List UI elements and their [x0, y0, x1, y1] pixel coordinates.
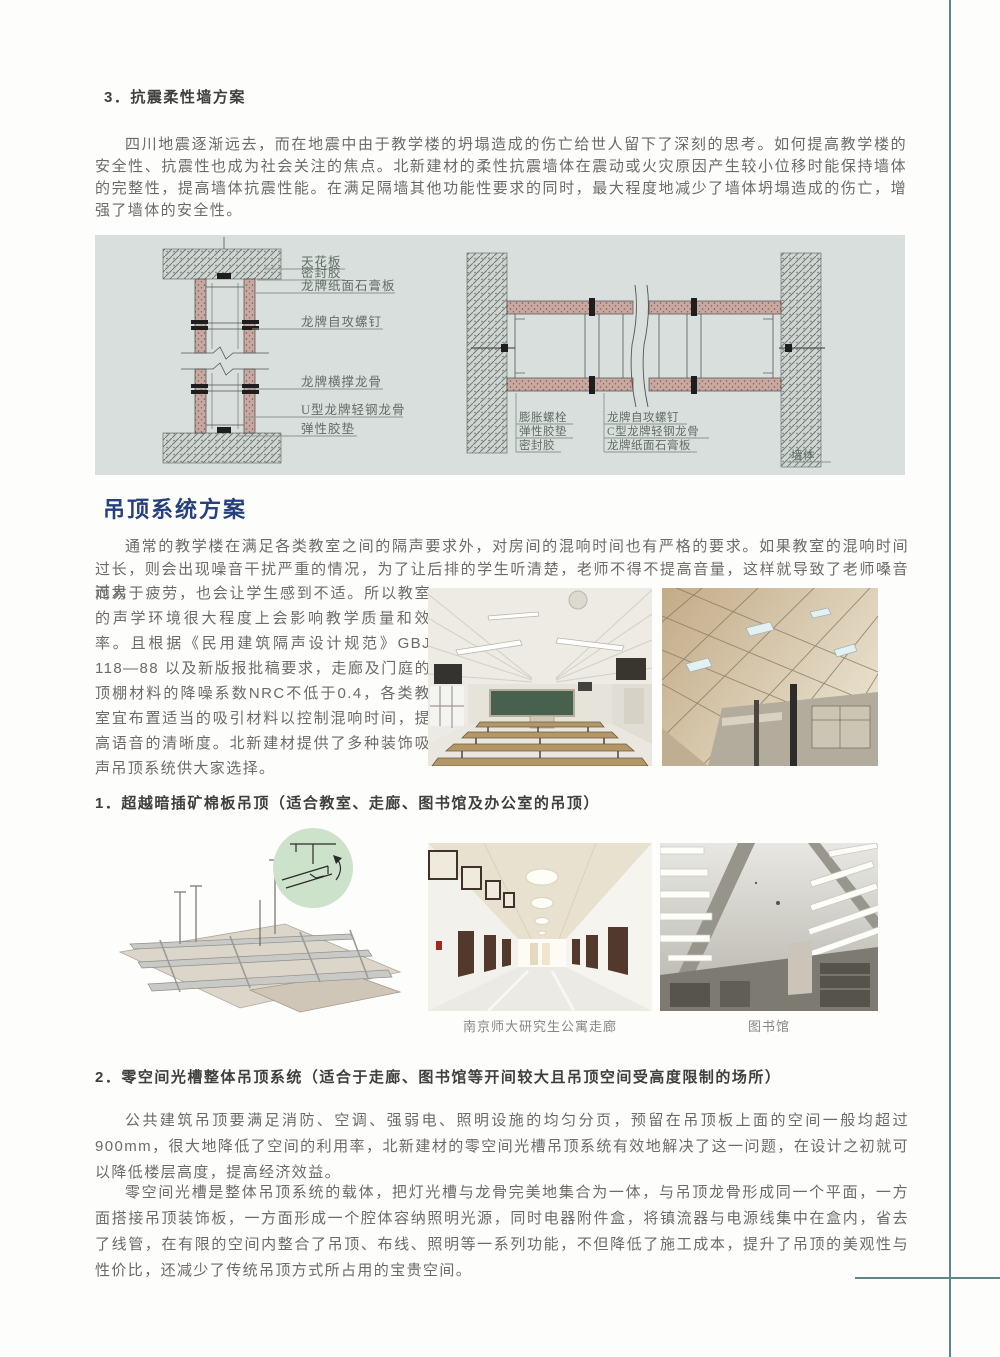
diagram-label: 龙牌纸面石膏板 — [301, 278, 396, 293]
corridor-photo-caption: 南京师大研究生公寓走廊 — [428, 1016, 652, 1035]
corridor-photo — [428, 843, 652, 1011]
ceiling-section-heading: 吊顶系统方案 — [103, 492, 247, 524]
mineral-wool-ceiling-heading: 1．超越暗插矿棉板吊顶（适合教室、走廊、图书馆及办公室的吊顶） — [95, 792, 600, 813]
diagram-label: 密封胶 — [301, 265, 342, 280]
diagram-label: 膨胀螺栓 — [519, 410, 567, 424]
diagram-label: 墙体 — [791, 448, 815, 462]
library-ceiling-photo — [660, 843, 878, 1011]
library-photo-caption: 图书馆 — [660, 1016, 878, 1035]
diagram-label: 弹性胶垫 — [301, 421, 355, 436]
suspended-ceiling-illustration — [100, 822, 420, 1018]
classroom-photo — [428, 588, 652, 766]
diagram-label: 龙牌自攻螺钉 — [607, 410, 679, 424]
wall-section-paragraph: 四川地震逐渐远去，而在地震中由于教学楼的坍塌造成的伤亡给世人留下了深刻的思考。如… — [95, 134, 907, 222]
document-page: 3．抗震柔性墙方案 四川地震逐渐远去，而在地震中由于教学楼的坍塌造成的伤亡给世人… — [0, 0, 1000, 1357]
wall-diagram-panel: 天花板 密封胶 龙牌纸面石膏板 龙牌自攻螺钉 龙牌横撑龙骨 U型龙牌轻钢龙骨 弹… — [95, 235, 905, 475]
ceiling-paragraph-part2: 而易于疲劳，也会让学生感到不适。所以教室的声学环境很大程度上会影响教学质量和效率… — [95, 581, 431, 781]
diagram-label: U型龙牌轻钢龙骨 — [301, 402, 406, 417]
page-rule-vertical — [949, 0, 951, 1357]
wall-section-heading: 3．抗震柔性墙方案 — [104, 86, 246, 107]
lab-ceiling-photo — [662, 588, 878, 766]
diagram-label: 龙牌自攻螺钉 — [301, 314, 382, 329]
wall-section-diagrams: 天花板 密封胶 龙牌纸面石膏板 龙牌自攻螺钉 龙牌横撑龙骨 U型龙牌轻钢龙骨 弹… — [95, 235, 905, 475]
zero-space-ceiling-heading: 2．零空间光槽整体吊顶系统（适合于走廊、图书馆等开间较大且吊顶空间受高度限制的场… — [95, 1066, 781, 1087]
diagram-label: 龙牌纸面石膏板 — [607, 438, 691, 452]
zero-space-paragraph-1: 公共建筑吊顶要满足消防、空调、强弱电、照明设施的均匀分页，预留在吊顶板上面的空间… — [95, 1108, 909, 1186]
diagram-label: C型龙牌轻钢龙骨 — [607, 424, 699, 438]
diagram-label: 弹性胶垫 — [519, 424, 567, 438]
diagram-label: 龙牌横撑龙骨 — [301, 374, 382, 389]
diagram-label: 密封胶 — [519, 438, 555, 452]
zero-space-paragraph-2: 零空间光槽是整体吊顶系统的载体，把灯光槽与龙骨完美地集合为一体，与吊顶龙骨形成同… — [95, 1180, 909, 1284]
